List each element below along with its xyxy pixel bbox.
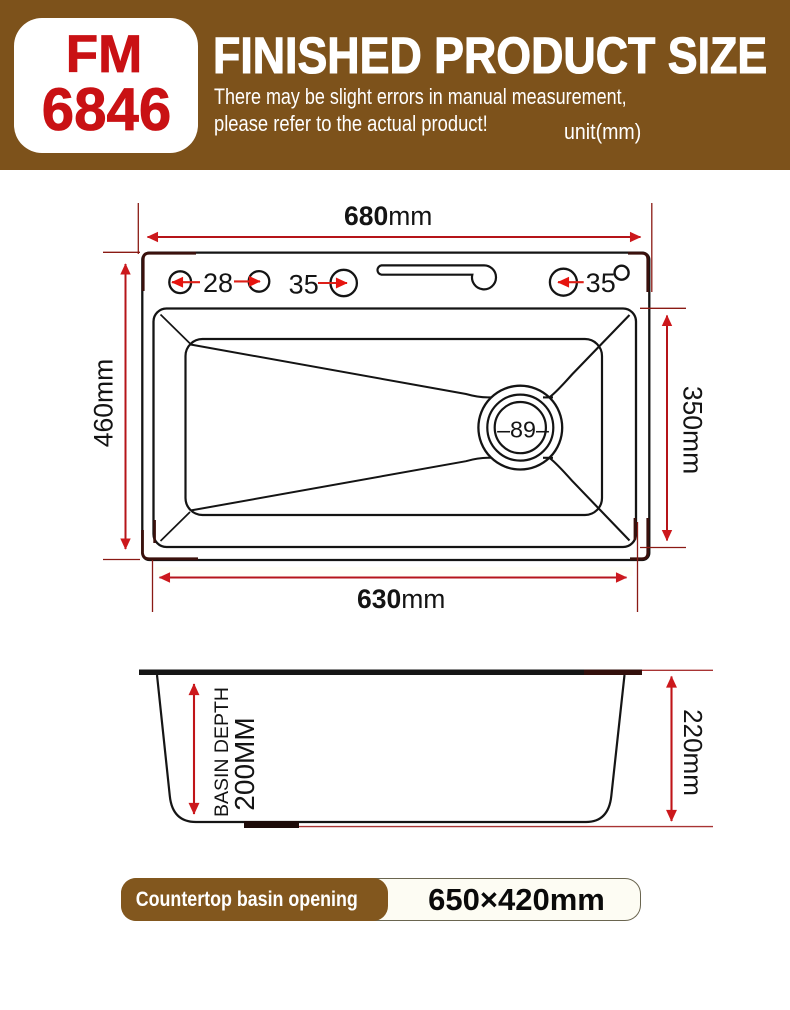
svg-text:460mm: 460mm bbox=[89, 359, 119, 447]
svg-text:35: 35 bbox=[289, 270, 319, 300]
svg-text:28: 28 bbox=[203, 268, 233, 298]
svg-text:350mm: 350mm bbox=[678, 386, 708, 474]
svg-text:35: 35 bbox=[586, 268, 616, 298]
svg-text:220mm: 220mm bbox=[678, 709, 708, 796]
svg-text:630mm: 630mm bbox=[357, 584, 445, 614]
svg-text:200MM: 200MM bbox=[229, 717, 260, 810]
svg-text:680mm: 680mm bbox=[344, 201, 432, 231]
svg-text:–89–: –89– bbox=[497, 417, 549, 443]
